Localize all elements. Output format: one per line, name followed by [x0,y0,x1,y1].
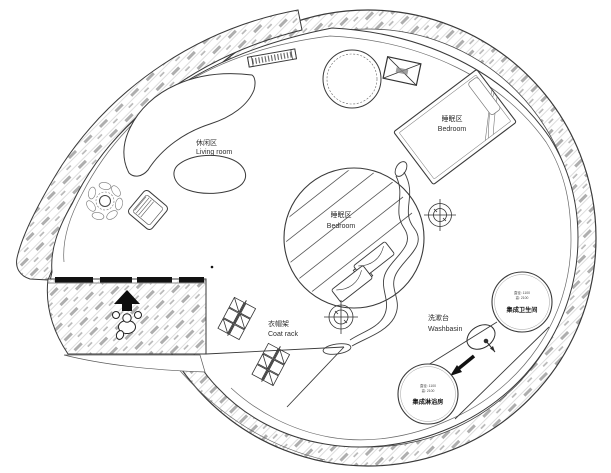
living-room-label-en: Living room [196,149,232,156]
center-bedroom-label-zh: 睡眠区 [331,211,352,219]
coat-rack-label-en: Coat rack [268,331,298,338]
washbasin-label-zh: 洗漱台 [428,313,449,322]
shower-pod-label: 集成淋浴房 [412,398,444,406]
corridor-wall-segments [55,277,204,283]
round-table [323,50,381,108]
upper-bedroom-label-en: Bedroom [438,126,467,133]
upper-bedroom-label-zh: 睡眠区 [442,115,463,123]
washbasin-label-en: Washbasin [428,326,462,333]
center-bedroom-label-en: Bedroom [327,223,356,230]
reference-dot [211,266,214,269]
shower-pod-spec1: 直径: 1100 [420,383,436,388]
living-room-label-zh: 休闲区 [196,138,217,147]
entrance-corridor [47,277,206,372]
coat-rack-label-zh: 衣帽架 [268,319,289,328]
floor-plan-drawing: 休闲区 Living room 睡眠区 Bedroom 睡眠区 Bedroom … [0,0,611,473]
bathroom-pod-label: 集成卫生间 [506,306,538,314]
bathroom-pod-spec1: 直径: 1100 [514,290,530,295]
bathroom-pod [492,272,552,332]
floor-plan-canvas: 休闲区 Living room 睡眠区 Bedroom 睡眠区 Bedroom … [0,0,611,473]
bathroom-pod-spec2: 高: 2100 [516,295,529,300]
shower-pod-spec2: 高: 2100 [422,388,435,393]
shower-pod [398,364,458,424]
coffee-table [174,155,246,193]
